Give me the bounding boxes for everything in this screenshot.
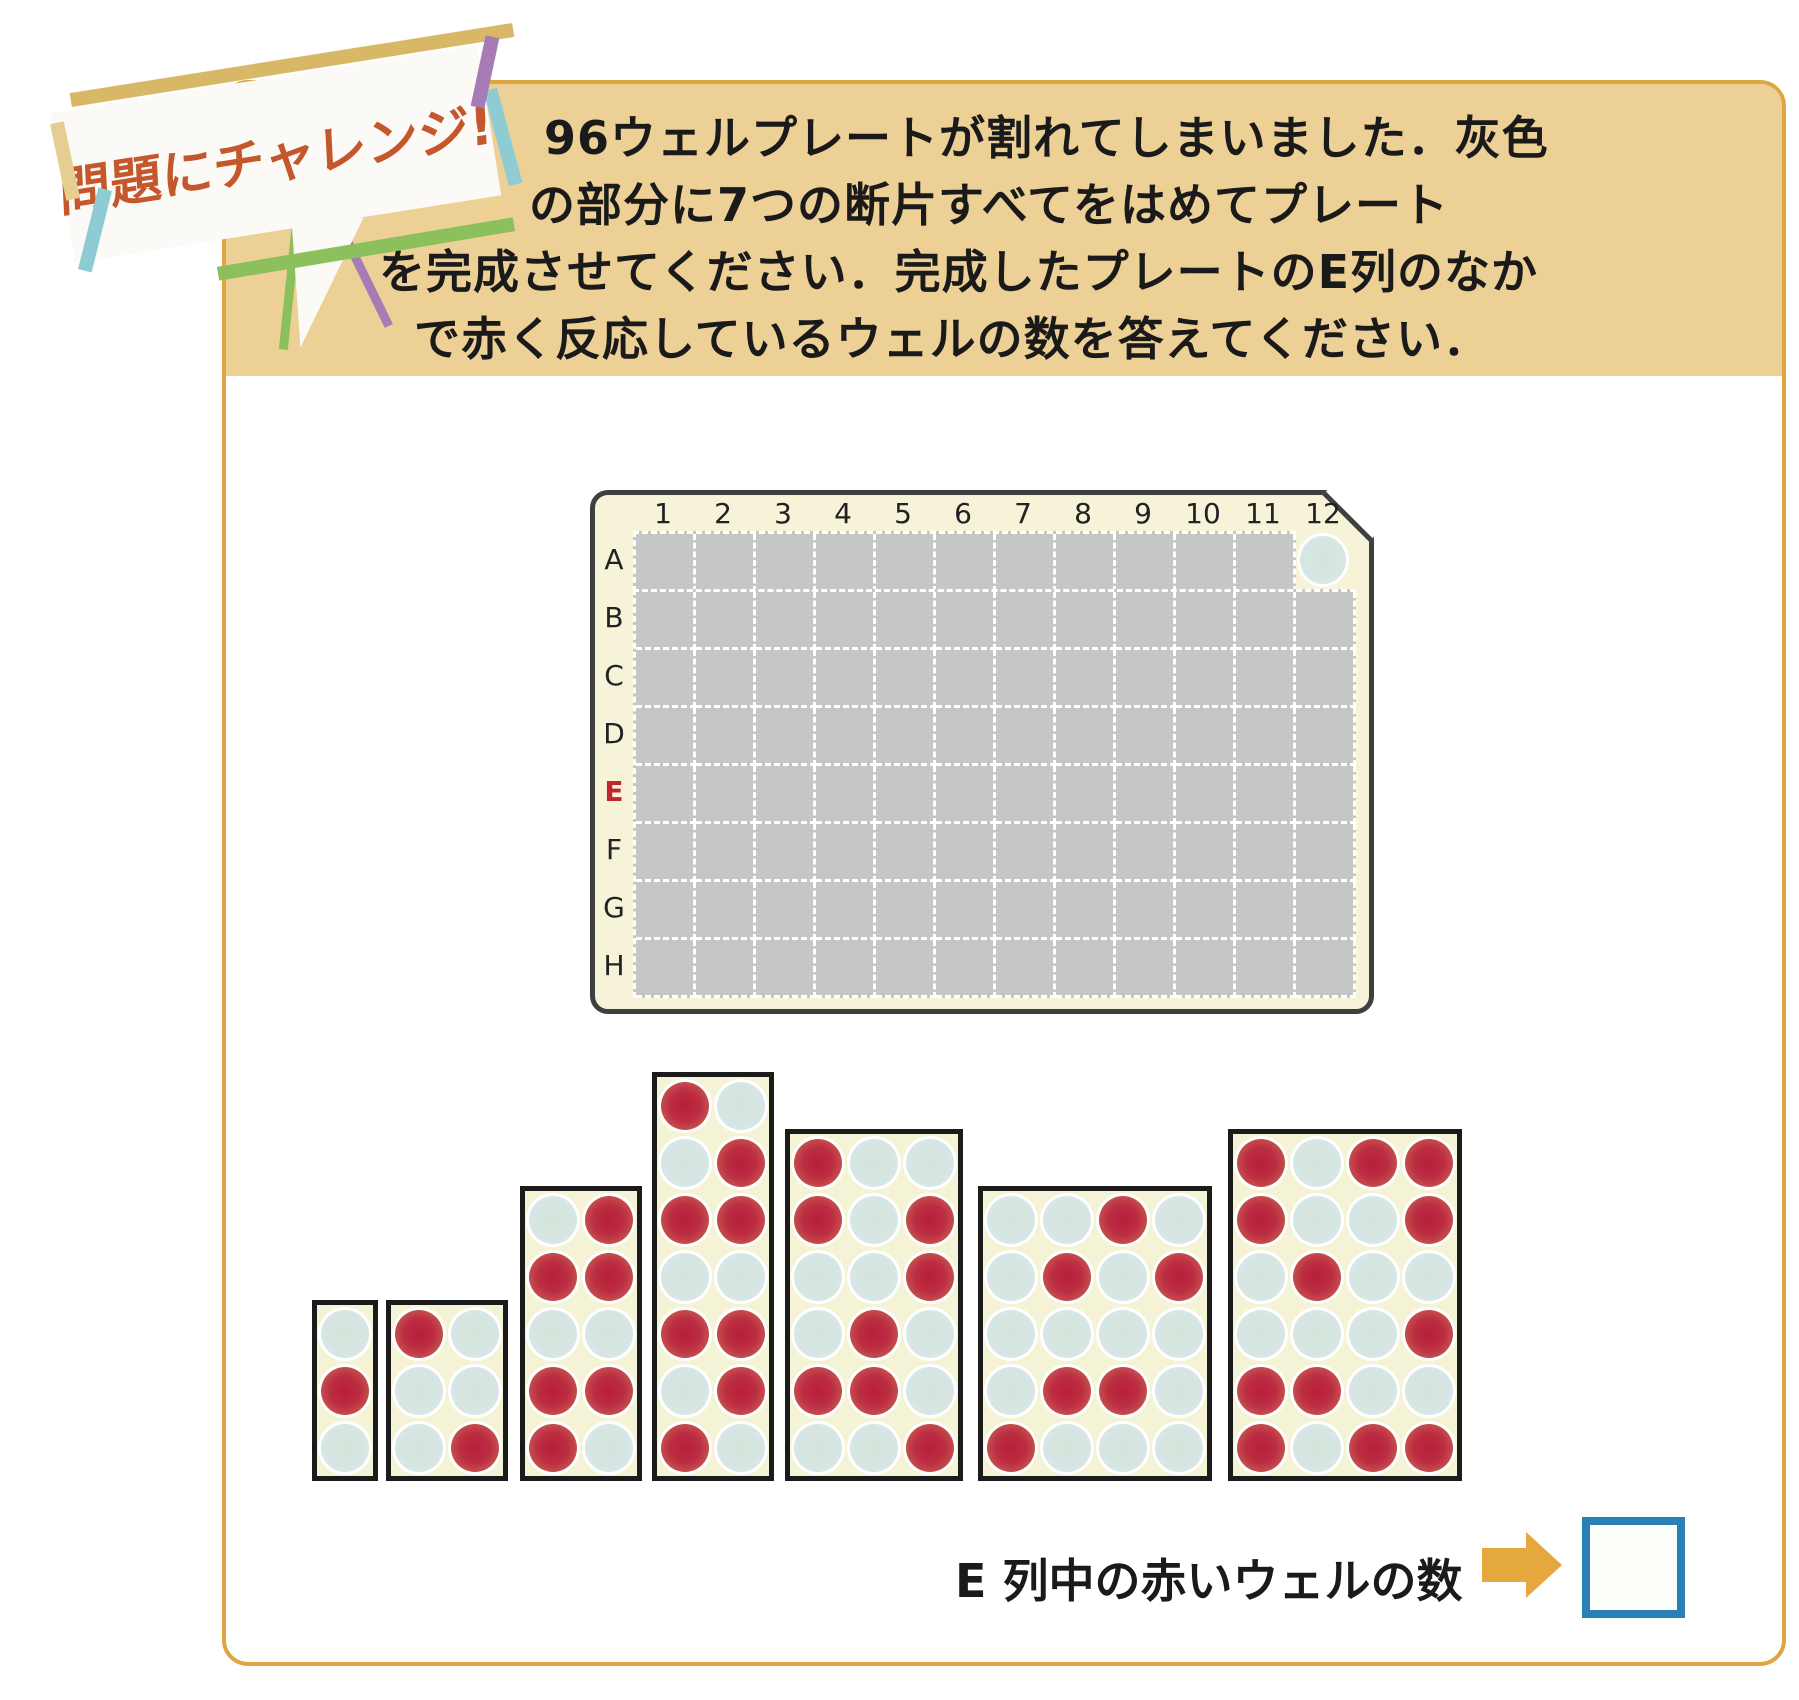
gray-cell (636, 882, 696, 940)
gray-cell (996, 592, 1056, 650)
blue-well (1293, 1424, 1341, 1472)
red-well (451, 1424, 499, 1472)
blue-well (1405, 1253, 1453, 1301)
gray-cell (936, 940, 996, 998)
gray-cell (696, 940, 756, 998)
challenge-badge: 問題にチャレンジ! (28, 30, 548, 360)
gray-cell (1176, 534, 1236, 592)
column-label-1: 1 (633, 497, 693, 531)
red-well (585, 1196, 633, 1244)
blue-well (906, 1367, 954, 1415)
arrow-right-icon (1482, 1532, 1562, 1598)
red-well (717, 1196, 765, 1244)
gray-cell (636, 650, 696, 708)
gray-cell (816, 592, 876, 650)
column-label-12: 12 (1293, 497, 1353, 531)
gray-cell (1236, 882, 1296, 940)
column-label-7: 7 (993, 497, 1053, 531)
gray-cell (876, 650, 936, 708)
red-well (1349, 1424, 1397, 1472)
red-well (661, 1196, 709, 1244)
blue-well (1099, 1253, 1147, 1301)
gray-cell (1236, 824, 1296, 882)
broken-region-rows-b-h (633, 589, 1356, 998)
red-well (1237, 1367, 1285, 1415)
column-label-5: 5 (873, 497, 933, 531)
gray-cell (996, 534, 1056, 592)
blue-well (850, 1253, 898, 1301)
instruction-line-3: を完成させてください．完成したプレートのE列のなか (379, 236, 1538, 302)
blue-well (717, 1253, 765, 1301)
blue-well (529, 1310, 577, 1358)
gray-cell (1056, 534, 1116, 592)
instruction-line-4: で赤く反応しているウェルの数を答えてください． (414, 303, 1490, 369)
answer-label: E 列中の赤いウェルの数 (955, 1545, 1462, 1611)
gray-cell (1176, 592, 1236, 650)
gray-cell (1056, 766, 1116, 824)
gray-cell (1236, 708, 1296, 766)
gray-cell (1176, 940, 1236, 998)
gray-cell (996, 824, 1056, 882)
broken-region-row-a (633, 531, 1296, 592)
red-well (906, 1196, 954, 1244)
blue-well (987, 1196, 1035, 1244)
gray-cell (1056, 708, 1116, 766)
column-label-6: 6 (933, 497, 993, 531)
gray-cell (636, 766, 696, 824)
gray-cell (936, 882, 996, 940)
gray-cell (1236, 766, 1296, 824)
gray-cell (1296, 882, 1356, 940)
red-well (1237, 1424, 1285, 1472)
red-well (794, 1139, 842, 1187)
red-well (661, 1310, 709, 1358)
gray-cell (1176, 766, 1236, 824)
blue-well (906, 1310, 954, 1358)
column-label-11: 11 (1233, 497, 1293, 531)
blue-well (1099, 1424, 1147, 1472)
gray-cell (996, 650, 1056, 708)
red-well (794, 1367, 842, 1415)
blue-well (1293, 1196, 1341, 1244)
red-well (1043, 1367, 1091, 1415)
gray-cell (1296, 650, 1356, 708)
gray-cell (756, 824, 816, 882)
gray-cell (696, 766, 756, 824)
blue-well (661, 1367, 709, 1415)
blue-well (1155, 1367, 1203, 1415)
column-label-2: 2 (693, 497, 753, 531)
row-label-C: C (597, 647, 631, 705)
well-plate: 123456789101112ABCDEFGH (590, 490, 1374, 1014)
gray-cell (696, 592, 756, 650)
gray-cell (876, 940, 936, 998)
blue-well (1349, 1310, 1397, 1358)
blue-well (717, 1082, 765, 1130)
gray-cell (756, 650, 816, 708)
blue-well (451, 1310, 499, 1358)
red-well (906, 1253, 954, 1301)
blue-well (1099, 1310, 1147, 1358)
answer-input-box[interactable] (1582, 1517, 1685, 1618)
blue-well (585, 1310, 633, 1358)
gray-cell (816, 708, 876, 766)
blue-well (794, 1424, 842, 1472)
red-well (1405, 1310, 1453, 1358)
gray-cell (1116, 534, 1176, 592)
blue-well (395, 1367, 443, 1415)
gray-cell (756, 592, 816, 650)
gray-cell (1116, 650, 1176, 708)
blue-well (1155, 1310, 1203, 1358)
fragment-5[interactable] (785, 1129, 963, 1481)
gray-cell (756, 534, 816, 592)
gray-cell (816, 882, 876, 940)
gray-cell (816, 824, 876, 882)
red-well (529, 1424, 577, 1472)
blue-well (850, 1196, 898, 1244)
blue-well (1237, 1310, 1285, 1358)
blue-well (717, 1424, 765, 1472)
badge-label: 問題にチャレンジ! (57, 82, 495, 226)
red-well (1405, 1196, 1453, 1244)
gray-cell (636, 708, 696, 766)
gray-cell (876, 824, 936, 882)
fragment-6[interactable] (978, 1186, 1212, 1481)
red-well (1237, 1196, 1285, 1244)
blue-well (1349, 1367, 1397, 1415)
blue-well (906, 1139, 954, 1187)
gray-cell (1296, 592, 1356, 650)
blue-well (451, 1367, 499, 1415)
gray-cell (936, 592, 996, 650)
blue-well (585, 1424, 633, 1472)
row-label-D: D (597, 705, 631, 763)
gray-cell (636, 592, 696, 650)
gray-cell (876, 882, 936, 940)
red-well (1155, 1253, 1203, 1301)
blue-well (395, 1424, 443, 1472)
blue-well (1293, 1310, 1341, 1358)
gray-cell (1296, 766, 1356, 824)
gray-cell (1056, 824, 1116, 882)
gray-cell (1236, 592, 1296, 650)
red-well (661, 1424, 709, 1472)
gray-cell (876, 592, 936, 650)
gray-cell (1116, 592, 1176, 650)
gray-cell (816, 650, 876, 708)
blue-well (1043, 1310, 1091, 1358)
red-well (1099, 1367, 1147, 1415)
red-well (395, 1310, 443, 1358)
fragment-1[interactable] (312, 1300, 378, 1481)
red-well (717, 1139, 765, 1187)
gray-cell (1116, 708, 1176, 766)
gray-cell (996, 708, 1056, 766)
column-label-8: 8 (1053, 497, 1113, 531)
gray-cell (1056, 940, 1116, 998)
gray-cell (636, 534, 696, 592)
blue-well (1043, 1196, 1091, 1244)
gray-cell (996, 766, 1056, 824)
blue-well (1349, 1196, 1397, 1244)
blue-well (1043, 1424, 1091, 1472)
gray-cell (1056, 650, 1116, 708)
blue-well (850, 1424, 898, 1472)
instruction-line-1: 96ウェルプレートが割れてしまいました．灰色 (544, 102, 1549, 168)
blue-well (1349, 1253, 1397, 1301)
bubble-tail (292, 218, 373, 348)
gray-cell (996, 940, 1056, 998)
gray-cell (1176, 708, 1236, 766)
blue-well (987, 1367, 1035, 1415)
red-well (850, 1310, 898, 1358)
red-well (321, 1367, 369, 1415)
blue-well (1237, 1253, 1285, 1301)
gray-cell (936, 824, 996, 882)
gray-cell (876, 708, 936, 766)
gray-cell (1116, 824, 1176, 882)
row-label-A: A (597, 531, 631, 589)
gray-cell (1116, 882, 1176, 940)
gray-cell (1236, 534, 1296, 592)
blue-well (1155, 1424, 1203, 1472)
row-label-G: G (597, 879, 631, 937)
red-well (717, 1367, 765, 1415)
blue-well (850, 1139, 898, 1187)
column-label-3: 3 (753, 497, 813, 531)
red-well (906, 1424, 954, 1472)
gray-cell (996, 882, 1056, 940)
blue-well (321, 1310, 369, 1358)
red-well (850, 1367, 898, 1415)
gray-cell (636, 824, 696, 882)
gray-cell (696, 650, 756, 708)
gray-cell (756, 766, 816, 824)
gray-cell (816, 766, 876, 824)
gray-cell (1236, 940, 1296, 998)
gray-cell (876, 534, 936, 592)
red-well (529, 1367, 577, 1415)
red-well (1405, 1139, 1453, 1187)
gray-cell (1296, 940, 1356, 998)
column-label-4: 4 (813, 497, 873, 531)
column-label-9: 9 (1113, 497, 1173, 531)
blue-well (661, 1139, 709, 1187)
gray-cell (1176, 882, 1236, 940)
gray-cell (696, 708, 756, 766)
fragment-4[interactable] (652, 1072, 774, 1481)
blue-well (987, 1310, 1035, 1358)
row-label-B: B (597, 589, 631, 647)
page: 96ウェルプレートが割れてしまいました．灰色 の部分に7つの断片すべてをはめてプ… (0, 0, 1799, 1700)
gray-cell (756, 940, 816, 998)
row-label-E: E (597, 763, 631, 821)
gray-cell (1176, 824, 1236, 882)
blue-well (1293, 1139, 1341, 1187)
red-well (1349, 1139, 1397, 1187)
red-well (1237, 1139, 1285, 1187)
fragment-7[interactable] (1228, 1129, 1462, 1481)
red-well (1099, 1196, 1147, 1244)
red-well (1405, 1424, 1453, 1472)
blue-well (321, 1424, 369, 1472)
red-well (717, 1310, 765, 1358)
red-well (1293, 1367, 1341, 1415)
gray-cell (1056, 882, 1116, 940)
red-well (1293, 1253, 1341, 1301)
gray-cell (1116, 766, 1176, 824)
red-well (794, 1196, 842, 1244)
well-a12 (1300, 536, 1346, 584)
gray-cell (1116, 940, 1176, 998)
fragment-2[interactable] (386, 1300, 508, 1481)
red-well (585, 1253, 633, 1301)
gray-cell (936, 650, 996, 708)
gray-cell (1296, 708, 1356, 766)
gray-cell (816, 534, 876, 592)
red-well (585, 1367, 633, 1415)
blue-well (987, 1253, 1035, 1301)
red-well (529, 1253, 577, 1301)
gray-cell (756, 882, 816, 940)
gray-cell (1176, 650, 1236, 708)
gray-cell (936, 766, 996, 824)
blue-well (1405, 1367, 1453, 1415)
gray-cell (936, 534, 996, 592)
gray-cell (816, 940, 876, 998)
gray-cell (696, 882, 756, 940)
gray-cell (876, 766, 936, 824)
gray-cell (696, 534, 756, 592)
gray-cell (1056, 592, 1116, 650)
instruction-line-2: の部分に7つの断片すべてをはめてプレート (529, 169, 1449, 235)
column-label-10: 10 (1173, 497, 1233, 531)
blue-well (794, 1253, 842, 1301)
fragment-3[interactable] (520, 1186, 642, 1481)
gray-cell (636, 940, 696, 998)
red-well (987, 1424, 1035, 1472)
blue-well (794, 1310, 842, 1358)
row-label-H: H (597, 937, 631, 995)
row-label-F: F (597, 821, 631, 879)
blue-well (1155, 1196, 1203, 1244)
gray-cell (696, 824, 756, 882)
blue-well (529, 1196, 577, 1244)
gray-cell (756, 708, 816, 766)
gray-cell (936, 708, 996, 766)
gray-cell (1296, 824, 1356, 882)
red-well (661, 1082, 709, 1130)
red-well (1043, 1253, 1091, 1301)
gray-cell (1236, 650, 1296, 708)
blue-well (661, 1253, 709, 1301)
